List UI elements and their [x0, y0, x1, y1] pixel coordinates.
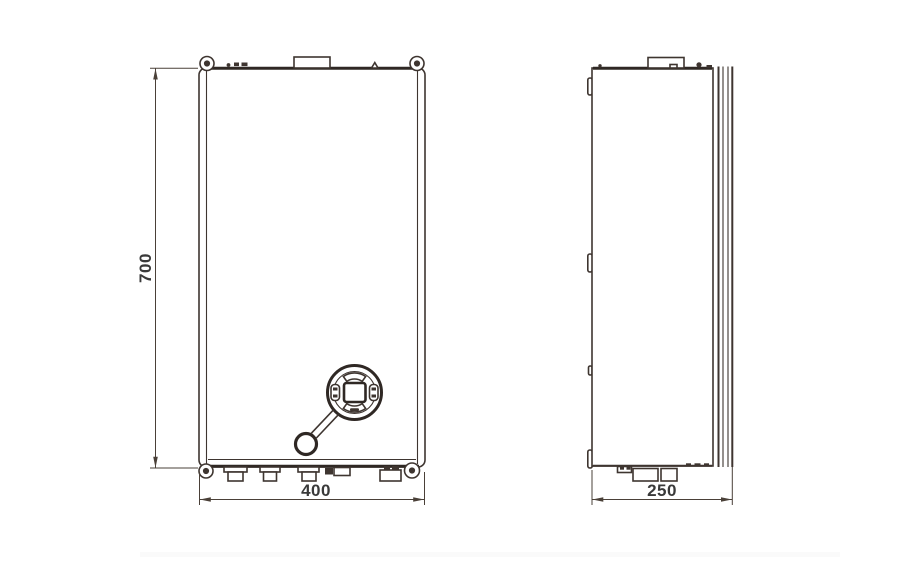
- front-view: [199, 57, 425, 482]
- bottom-tab: [686, 463, 691, 466]
- arrowhead-right: [721, 497, 732, 502]
- side-view: [588, 58, 733, 482]
- pipe-connections: [224, 466, 401, 481]
- dial-button-right-dot: [372, 388, 377, 391]
- top-mark-dash: [707, 65, 713, 68]
- drawing-page: 700 400 250: [0, 0, 900, 564]
- mount-bottom-left-screw: [203, 468, 209, 474]
- dimension-height: 700: [136, 68, 198, 468]
- pipe-stub: [380, 470, 401, 481]
- control-dial: [328, 366, 382, 420]
- dial-button-right: [370, 385, 379, 401]
- side-cabinet-outline: [592, 68, 713, 466]
- mount-top-right-screw: [414, 60, 420, 66]
- valve-mark: [627, 467, 631, 470]
- scan-artifact-band: [140, 552, 840, 557]
- cable-gland-plate: [334, 468, 350, 476]
- top-mark-dot: [696, 62, 701, 67]
- dial-bottom-mark: [350, 408, 359, 411]
- top-mark-dash: [242, 63, 248, 67]
- front-cabinet-outline: [199, 68, 425, 467]
- dial-button-left-dot: [333, 388, 338, 391]
- mount-top-left-screw: [204, 60, 210, 66]
- back-mounting-rails: [719, 67, 733, 468]
- valve-mark: [620, 467, 624, 470]
- pipe-stub: [302, 472, 316, 481]
- top-mark-bump: [670, 65, 677, 69]
- pipe-stub: [264, 472, 277, 481]
- dial-button-right-dot: [372, 395, 377, 398]
- top-mark-bump: [372, 63, 379, 68]
- side-flue-notch: [648, 58, 684, 69]
- bottom-tab: [695, 463, 701, 466]
- arrowhead-up: [153, 69, 158, 80]
- top-mark-dash: [234, 63, 239, 67]
- top-mark-dot: [227, 63, 231, 67]
- cable-gland: [325, 468, 333, 475]
- pipe-stub: [661, 469, 677, 482]
- arrowhead-right: [413, 497, 424, 502]
- width-dimension-label: 400: [301, 481, 331, 500]
- dial-display-screen: [344, 383, 366, 402]
- arrowhead-down: [153, 457, 158, 468]
- height-dimension-label: 700: [136, 253, 155, 283]
- pipe-stub: [633, 469, 658, 482]
- bottom-tab: [704, 463, 709, 466]
- mount-bottom-right-screw: [409, 467, 415, 473]
- arrowhead-left: [200, 497, 211, 502]
- boiler-dimension-drawing: 700 400 250: [0, 0, 900, 564]
- top-flue-notch: [294, 57, 330, 68]
- top-mark-dot: [598, 64, 601, 67]
- dial-button-left: [331, 385, 340, 401]
- dial-button-left-dot: [333, 395, 338, 398]
- depth-dimension-label: 250: [647, 481, 677, 500]
- arrowhead-left: [592, 497, 603, 502]
- pipe-stub: [228, 472, 243, 481]
